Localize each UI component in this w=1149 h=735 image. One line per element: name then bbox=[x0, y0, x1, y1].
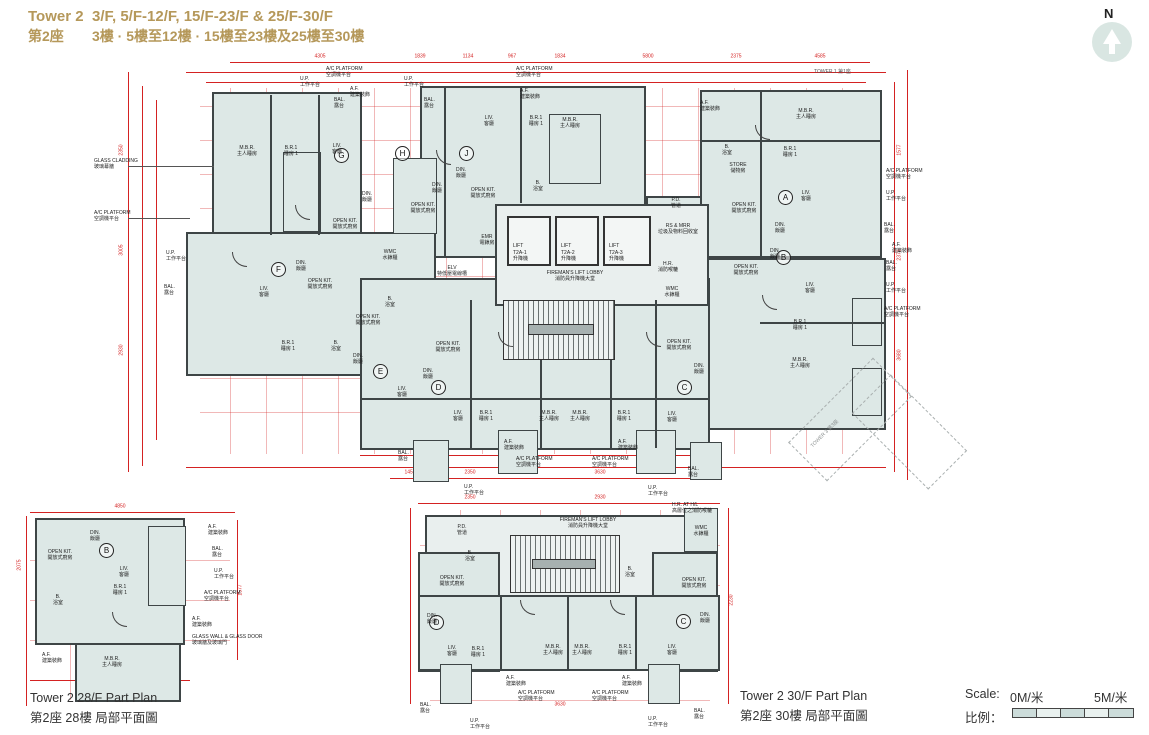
dim-value: 2350 bbox=[464, 471, 475, 476]
room-zh: 飯廳 bbox=[432, 188, 442, 194]
lift-label: 升降機 bbox=[561, 256, 597, 262]
room-zh: 客廳 bbox=[453, 416, 463, 422]
room-zh: 浴室 bbox=[625, 572, 635, 578]
room-zh: 睡房 1 bbox=[793, 325, 807, 331]
plan28-balcony-block bbox=[148, 526, 186, 606]
unit-badge-d: D bbox=[431, 380, 446, 395]
dim-value: 4305 bbox=[314, 55, 325, 60]
room-zh: 水錶櫃 bbox=[693, 531, 708, 537]
ann-zh: 建築裝飾 bbox=[208, 530, 228, 536]
dim-value: 5800 bbox=[642, 55, 653, 60]
room-zh: 開放式廚房 bbox=[47, 555, 72, 561]
partition-wall bbox=[500, 595, 502, 671]
room-label-br1: B.R.1睡房 1 bbox=[529, 115, 543, 127]
room-label-din: DIN.飯廳 bbox=[694, 363, 704, 375]
room-zh: 管道 bbox=[457, 530, 467, 536]
plan28-title-zh: 第2座 28樓 局部平面圖 bbox=[30, 707, 158, 726]
page-title-floors-en: 3/F, 5/F-12/F, 15/F-23/F & 25/F-30/F bbox=[92, 8, 333, 25]
annotation-ac-platform: A/C PLATFORM空調機平台 bbox=[884, 306, 921, 318]
room-zh: 客廳 bbox=[484, 121, 494, 127]
room-label-mbr: M.B.R.主人睡房 bbox=[543, 644, 563, 656]
room-zh: 浴室 bbox=[385, 302, 395, 308]
unit-badge-a: A bbox=[778, 190, 793, 205]
room-zh: 浴室 bbox=[465, 556, 475, 562]
room-label-hr: H.R.消防喉轆 bbox=[658, 261, 678, 273]
room-label-rsmrr: RS & MRR垃圾及物料回收室 bbox=[658, 223, 698, 235]
scale-bar-segment bbox=[1085, 709, 1109, 717]
partition-wall bbox=[444, 88, 446, 256]
room-label-bath: B.浴室 bbox=[533, 180, 543, 192]
room-zh: 主人睡房 bbox=[237, 151, 257, 157]
room-zh: 客廳 bbox=[332, 149, 342, 155]
scale-bar-segment bbox=[1013, 709, 1037, 717]
room-label-okit: OPEN KIT.開放式廚房 bbox=[731, 202, 756, 214]
partition-wall bbox=[567, 595, 569, 671]
room-label-mbr: M.B.R.主人睡房 bbox=[790, 357, 810, 369]
annotation-ac-platform: A/C PLATFORM空調機平台 bbox=[518, 690, 555, 702]
ann-zh: 露台 bbox=[886, 266, 897, 272]
room-zh: 主人睡房 bbox=[543, 650, 563, 656]
leader-line bbox=[128, 218, 190, 219]
annotation-ac-platform: A/C PLATFORM空調機平台 bbox=[516, 66, 553, 78]
room-label-din: DIN.飯廳 bbox=[427, 613, 437, 625]
ann-zh: 工作平台 bbox=[886, 196, 906, 202]
scale-label-zh: 比例： bbox=[965, 707, 1003, 726]
room-label-wmc: WMC水錶櫃 bbox=[382, 249, 397, 261]
annotation-up: U.P.工作平台 bbox=[648, 716, 668, 728]
annotation-ac-platform: A/C PLATFORM空調機平台 bbox=[204, 590, 241, 602]
page-title-tower-zh: 第2座 bbox=[28, 26, 64, 46]
annotation-up: U.P.工作平台 bbox=[648, 485, 668, 497]
room-zh: 開放式廚房 bbox=[307, 284, 332, 290]
ann-zh: 露台 bbox=[420, 708, 431, 714]
ann-zh: 空調機平台 bbox=[884, 312, 921, 318]
annotation-af: A.F.建築裝飾 bbox=[504, 439, 524, 451]
room-label-liv: LIV.客廳 bbox=[667, 644, 677, 656]
room-zh: 開放式廚房 bbox=[666, 345, 691, 351]
room-zh: 水錶櫃 bbox=[664, 292, 679, 298]
room-zh: 飯廳 bbox=[775, 228, 785, 234]
ann-zh: 工作平台 bbox=[648, 491, 668, 497]
room-label-din: DIN.飯廳 bbox=[90, 530, 100, 542]
balcony-block bbox=[283, 152, 321, 232]
dim-value: 1577 bbox=[898, 144, 903, 155]
annotation-up: U.P.工作平台 bbox=[886, 282, 906, 294]
lift-t2a-1: LIFT T2A-1 升降機 bbox=[507, 216, 551, 266]
room-zh: 客廳 bbox=[667, 650, 677, 656]
partition-wall bbox=[318, 95, 320, 235]
room-zh: 飯廳 bbox=[427, 619, 437, 625]
room-label-liv: LIV.客廳 bbox=[397, 386, 407, 398]
partition-wall bbox=[362, 398, 708, 400]
lift-label: 升降機 bbox=[609, 256, 649, 262]
annotation-af: A.F.建築裝飾 bbox=[192, 616, 212, 628]
room-label-din: DIN.飯廳 bbox=[456, 167, 466, 179]
room-label-din: DIN.飯廳 bbox=[770, 248, 780, 260]
annotation-af: A.F.建築裝飾 bbox=[892, 242, 912, 254]
lift-t2a-2: LIFT T2A-2 升降機 bbox=[555, 216, 599, 266]
scale-label-en: Scale: bbox=[965, 687, 1000, 701]
ac-platform-block bbox=[648, 664, 680, 704]
partition-wall bbox=[760, 322, 884, 324]
annotation-up: U.P.工作平台 bbox=[470, 718, 490, 730]
annotation-ac-platform: A/C PLATFORM空調機平台 bbox=[592, 690, 629, 702]
room-zh: 主人睡房 bbox=[560, 123, 580, 129]
dim-value: 3630 bbox=[594, 471, 605, 476]
partition-wall bbox=[470, 300, 472, 448]
room-label-liv: LIV.客廳 bbox=[801, 190, 811, 202]
room-label-pd: P.D.管道 bbox=[671, 197, 681, 209]
partition-wall bbox=[760, 90, 762, 258]
room-label-okit: OPEN KIT.開放式廚房 bbox=[733, 264, 758, 276]
annotation-ac-platform: A/C PLATFORM空調機平台 bbox=[886, 168, 923, 180]
room-label-mbr: M.B.R.主人睡房 bbox=[570, 410, 590, 422]
room-label-okit: OPEN KIT.開放式廚房 bbox=[439, 575, 464, 587]
room-zh: 飯廳 bbox=[770, 254, 780, 260]
room-label-elv: ELV特低壓電線槽 bbox=[437, 265, 467, 277]
room-label-mbr: M.B.R.主人睡房 bbox=[796, 108, 816, 120]
room-label-din: DIN.飯廳 bbox=[353, 353, 363, 365]
annotation-bal: BAL.露台 bbox=[688, 466, 699, 478]
room-zh: 客廳 bbox=[801, 196, 811, 202]
north-arrow-icon bbox=[1092, 22, 1132, 62]
room-label-wmc: WMC水錶櫃 bbox=[693, 525, 708, 537]
room-zh: 開放式廚房 bbox=[470, 193, 495, 199]
room-zh: 儲物房 bbox=[729, 168, 746, 174]
room-zh: 睡房 1 bbox=[281, 346, 295, 352]
annotation-up: U.P.工作平台 bbox=[886, 190, 906, 202]
room-zh: 開放式廚房 bbox=[731, 208, 756, 214]
annotation-af: A.F.建築裝飾 bbox=[700, 100, 720, 112]
annotation-up: U.P.工作平台 bbox=[214, 568, 234, 580]
north-label: N bbox=[1104, 6, 1113, 21]
room-zh: 開放式廚房 bbox=[332, 224, 357, 230]
room-label-br1: B.R.1睡房 1 bbox=[471, 646, 485, 658]
room-label-din: DIN.飯廳 bbox=[423, 368, 433, 380]
room-label-okit: OPEN KIT.開放式廚房 bbox=[410, 202, 435, 214]
ann-zh: 工作平台 bbox=[300, 82, 320, 88]
ann-zh: 空調機平台 bbox=[518, 696, 555, 702]
room-label-br1: B.R.1睡房 1 bbox=[793, 319, 807, 331]
annotation-bal: BAL.露台 bbox=[694, 708, 705, 720]
room-zh: 特低壓電線槽 bbox=[437, 271, 467, 277]
scale-bar-segment bbox=[1109, 709, 1133, 717]
room-zh: 開放式廚房 bbox=[681, 583, 706, 589]
ann-zh: 建築裝飾 bbox=[622, 681, 642, 687]
room-label-okit: OPEN KIT.開放式廚房 bbox=[307, 278, 332, 290]
room-label-liv: LIV.客廳 bbox=[447, 645, 457, 657]
ann-zh: 工作平台 bbox=[470, 724, 490, 730]
annotation-af: A.F.建築裝飾 bbox=[622, 675, 642, 687]
room-label-bath: B.浴室 bbox=[53, 594, 63, 606]
ann-zh: 露台 bbox=[694, 714, 705, 720]
room-label-okit: OPEN KIT.開放式廚房 bbox=[355, 314, 380, 326]
partition-wall bbox=[270, 95, 272, 235]
room-zh: 客廳 bbox=[259, 292, 269, 298]
room-zh: 睡房 1 bbox=[479, 416, 493, 422]
room-zh: 消防員升降機大堂 bbox=[560, 523, 616, 529]
plan28-title-en: Tower 2 28/F Part Plan bbox=[30, 691, 157, 705]
ann-zh: 空調機平台 bbox=[886, 174, 923, 180]
annotation-bal: BAL.露台 bbox=[884, 222, 895, 234]
ann-zh: 建築裝飾 bbox=[192, 622, 212, 628]
dim-value: 2350 bbox=[120, 144, 125, 155]
annotation-up: U.P.工作平台 bbox=[166, 250, 186, 262]
ann-zh: 露台 bbox=[688, 472, 699, 478]
ann-zh: 空調機平台 bbox=[204, 596, 241, 602]
annotation-bal: BAL.露台 bbox=[886, 260, 897, 272]
partition-wall bbox=[520, 88, 522, 203]
ann-zh: 建築裝飾 bbox=[42, 658, 62, 664]
unit-badge-c-30f: C bbox=[676, 614, 691, 629]
annotation-ac-platform: A/C PLATFORM空調機平台 bbox=[326, 66, 363, 78]
room-zh: 開放式廚房 bbox=[435, 347, 460, 353]
room-label-bath: B.浴室 bbox=[331, 340, 341, 352]
annotation-ac-platform: A/C PLATFORM空調機平台 bbox=[592, 456, 629, 468]
room-zh: 開放式廚房 bbox=[355, 320, 380, 326]
plan30-title-en: Tower 2 30/F Part Plan bbox=[740, 689, 867, 703]
room-zh: 飯廳 bbox=[362, 197, 372, 203]
annotation-bal: BAL.露台 bbox=[164, 284, 175, 296]
room-zh: 睡房 1 bbox=[783, 152, 797, 158]
room-zh: 飯廳 bbox=[694, 369, 704, 375]
dim-value: 3005 bbox=[120, 244, 125, 255]
ann-zh: 建築裝飾 bbox=[350, 92, 370, 98]
dim-value: 4585 bbox=[814, 55, 825, 60]
room-label-wmc: WMC水錶櫃 bbox=[664, 286, 679, 298]
dim-value: 2930 bbox=[594, 496, 605, 501]
ann-zh: 露台 bbox=[398, 456, 409, 462]
room-zh: 客廳 bbox=[447, 651, 457, 657]
annotation-up: U.P.工作平台 bbox=[404, 76, 424, 88]
dim-value: 967 bbox=[508, 55, 516, 60]
annotation-af: A.F.建築裝飾 bbox=[350, 86, 370, 98]
room-zh: 水錶櫃 bbox=[382, 255, 397, 261]
page-title-tower-en: Tower 2 bbox=[28, 8, 84, 25]
room-label-liv: LIV.客廳 bbox=[453, 410, 463, 422]
room-label-br1: B.R.1睡房 1 bbox=[618, 644, 632, 656]
unit-badge-j: J bbox=[459, 146, 474, 161]
partition-wall bbox=[635, 595, 637, 671]
room-zh: 飯廳 bbox=[90, 536, 100, 542]
dim-value: 1134 bbox=[463, 55, 474, 60]
room-label-din: DIN.飯廳 bbox=[700, 612, 710, 624]
annotation-af: A.F.建築裝飾 bbox=[506, 675, 526, 687]
room-label-liv: LIV.客廳 bbox=[332, 143, 342, 155]
room-zh: 浴室 bbox=[53, 600, 63, 606]
room-zh: 飯廳 bbox=[456, 173, 466, 179]
room-zh: 消防員升降機大堂 bbox=[547, 276, 603, 282]
ac-platform-block bbox=[440, 664, 472, 704]
room-label-firemans-lift-lobby: FIREMAN'S LIFT LOBBY消防員升降機大堂 bbox=[547, 270, 603, 282]
unit-badge-b-28f: B bbox=[99, 543, 114, 558]
dim-value: 4850 bbox=[114, 505, 125, 510]
dim-value: 3630 bbox=[554, 703, 565, 708]
annotation-bal: BAL.露台 bbox=[334, 97, 345, 109]
ann-zh: 工作平台 bbox=[404, 82, 424, 88]
scale-bar-segment bbox=[1061, 709, 1085, 717]
room-zh: 主人睡房 bbox=[570, 416, 590, 422]
room-label-bath: B.浴室 bbox=[722, 144, 732, 156]
staircase-landing bbox=[528, 324, 594, 335]
dim-value: 2375 bbox=[730, 55, 741, 60]
room-zh: 飯廳 bbox=[423, 374, 433, 380]
ann-zh: 露台 bbox=[424, 103, 435, 109]
annotation-bal: BAL.露台 bbox=[420, 702, 431, 714]
floor-plan-page: Tower 2 3/F, 5/F-12/F, 15/F-23/F & 25/F-… bbox=[0, 0, 1149, 735]
room-label-okit: OPEN KIT.開放式廚房 bbox=[332, 218, 357, 230]
dim-line bbox=[230, 62, 870, 63]
room-label-din: DIN.飯廳 bbox=[362, 191, 372, 203]
room-zh: 開放式廚房 bbox=[439, 581, 464, 587]
room-label-br1: B.R.1睡房 1 bbox=[284, 145, 298, 157]
ann-zh: 露台 bbox=[884, 228, 895, 234]
scale-bar-segment bbox=[1037, 709, 1061, 717]
room-zh: 客廳 bbox=[397, 392, 407, 398]
room-label-bath: B.浴室 bbox=[465, 550, 475, 562]
dim-line bbox=[26, 516, 27, 706]
room-label-okit: OPEN KIT.開放式廚房 bbox=[435, 341, 460, 353]
ann-zh: 建築裝飾 bbox=[506, 681, 526, 687]
tower1-outline-label: TOWER 1 第1座 bbox=[814, 68, 851, 75]
room-label-mbr: M.B.R.主人睡房 bbox=[237, 145, 257, 157]
room-label-liv: LIV.客廳 bbox=[667, 411, 677, 423]
dim-line bbox=[128, 72, 129, 472]
annotation-glass-wall-door: GLASS WALL & GLASS DOOR玻璃牆及玻璃門 bbox=[192, 634, 263, 646]
lift-label: 升降機 bbox=[513, 256, 549, 262]
balcony-block bbox=[393, 158, 437, 234]
ann-zh: 玻璃幕牆 bbox=[94, 164, 138, 170]
annotation-hr-at-hl: H.R. AT H/L高層位之消防喉轆 bbox=[672, 502, 712, 514]
dim-line bbox=[156, 100, 157, 440]
room-zh: 開放式廚房 bbox=[733, 270, 758, 276]
dim-line bbox=[142, 86, 143, 466]
room-zh: 浴室 bbox=[722, 150, 732, 156]
dim-value: 1834 bbox=[554, 55, 565, 60]
plan30-block-bottom-row bbox=[418, 595, 720, 671]
ann-zh: 工作平台 bbox=[886, 288, 906, 294]
annotation-bal: BAL.露台 bbox=[424, 97, 435, 109]
room-label-pd: P.D.管道 bbox=[457, 524, 467, 536]
page-title-floors-zh: 3樓 · 5樓至12樓 · 15樓至23樓及25樓至30樓 bbox=[92, 26, 364, 46]
ann-zh: 露台 bbox=[212, 552, 223, 558]
annotation-af: A.F.建築裝飾 bbox=[208, 524, 228, 536]
ann-zh: 建築裝飾 bbox=[520, 94, 540, 100]
room-label-store: STORE儲物房 bbox=[729, 162, 746, 174]
dim-value: 2230 bbox=[730, 594, 735, 605]
room-zh: 主人睡房 bbox=[790, 363, 810, 369]
ann-zh: 建築裝飾 bbox=[504, 445, 524, 451]
ann-zh: 建築裝飾 bbox=[700, 106, 720, 112]
room-zh: 主人睡房 bbox=[572, 650, 592, 656]
room-label-okit: OPEN KIT.開放式廚房 bbox=[470, 187, 495, 199]
ann-zh: 空調機平台 bbox=[516, 72, 553, 78]
unit-badge-e: E bbox=[373, 364, 388, 379]
staircase-landing-30f bbox=[532, 559, 596, 569]
annotation-bal: BAL.露台 bbox=[398, 450, 409, 462]
room-zh: 飯廳 bbox=[296, 266, 306, 272]
room-zh: 主人睡房 bbox=[796, 114, 816, 120]
room-label-bath: B.浴室 bbox=[625, 566, 635, 578]
room-zh: 飯廳 bbox=[353, 359, 363, 365]
room-label-din: DIN.飯廳 bbox=[775, 222, 785, 234]
room-zh: 電錶房 bbox=[479, 240, 494, 246]
room-label-okit: OPEN KIT.開放式廚房 bbox=[666, 339, 691, 351]
room-label-okit: OPEN KIT.開放式廚房 bbox=[681, 577, 706, 589]
unit-badge-c: C bbox=[677, 380, 692, 395]
room-zh: 飯廳 bbox=[700, 618, 710, 624]
ann-zh: 工作平台 bbox=[166, 256, 186, 262]
room-label-liv: LIV.客廳 bbox=[119, 566, 129, 578]
ann-zh: 建築裝飾 bbox=[618, 445, 638, 451]
room-zh: 客廳 bbox=[119, 572, 129, 578]
annotation-bal: BAL.露台 bbox=[212, 546, 223, 558]
room-zh: 主人睡房 bbox=[102, 662, 122, 668]
scale-end-label: 5M/米 bbox=[1094, 687, 1127, 706]
ann-zh: 玻璃牆及玻璃門 bbox=[192, 640, 263, 646]
ann-zh: 空調機平台 bbox=[516, 462, 553, 468]
room-zh: 管道 bbox=[671, 203, 681, 209]
ann-zh: 高層位之消防喉轆 bbox=[672, 508, 712, 514]
room-zh: 睡房 1 bbox=[529, 121, 543, 127]
scale-start-label: 0M/米 bbox=[1010, 687, 1043, 706]
ann-zh: 工作平台 bbox=[648, 722, 668, 728]
room-label-liv: LIV.客廳 bbox=[259, 286, 269, 298]
dim-line bbox=[728, 508, 729, 704]
annotation-af: A.F.建築裝飾 bbox=[618, 439, 638, 451]
room-zh: 客廳 bbox=[805, 288, 815, 294]
room-label-mbr: M.B.R.主人睡房 bbox=[572, 644, 592, 656]
ann-zh: 露台 bbox=[334, 103, 345, 109]
annotation-glass-cladding: GLASS CLADDING玻璃幕牆 bbox=[94, 158, 138, 170]
dim-value: 2930 bbox=[120, 344, 125, 355]
room-label-din: DIN.飯廳 bbox=[432, 182, 442, 194]
plan30-title-zh: 第2座 30樓 局部平面圖 bbox=[740, 705, 868, 724]
dim-value: 2075 bbox=[18, 559, 23, 570]
room-zh: 開放式廚房 bbox=[410, 208, 435, 214]
room-zh: 垃圾及物料回收室 bbox=[658, 229, 698, 235]
plan-block-unit-a bbox=[700, 90, 882, 258]
ann-zh: 工作平台 bbox=[214, 574, 234, 580]
dim-line bbox=[30, 512, 235, 513]
room-label-liv: LIV.客廳 bbox=[805, 282, 815, 294]
room-label-br1: B.R.1睡房 1 bbox=[113, 584, 127, 596]
leader-line bbox=[128, 166, 214, 167]
room-label-firemans-lift-lobby: FIREMAN'S LIFT LOBBY消防員升降機大堂 bbox=[560, 517, 616, 529]
room-label-din: DIN.飯廳 bbox=[296, 260, 306, 272]
room-zh: 睡房 1 bbox=[617, 416, 631, 422]
ann-zh: 空調機平台 bbox=[94, 216, 131, 222]
room-zh: 睡房 1 bbox=[471, 652, 485, 658]
room-zh: 睡房 1 bbox=[618, 650, 632, 656]
room-label-br1: B.R.1睡房 1 bbox=[617, 410, 631, 422]
partition-wall bbox=[655, 300, 657, 448]
room-zh: 浴室 bbox=[533, 186, 543, 192]
annotation-af: A.F.建築裝飾 bbox=[520, 88, 540, 100]
room-label-liv: LIV.客廳 bbox=[484, 115, 494, 127]
ann-zh: 建築裝飾 bbox=[892, 248, 912, 254]
room-zh: 睡房 1 bbox=[113, 590, 127, 596]
room-zh: 睡房 1 bbox=[284, 151, 298, 157]
unit-badge-f: F bbox=[271, 262, 286, 277]
annotation-ac-platform: A/C PLATFORM空調機平台 bbox=[94, 210, 131, 222]
annotation-af: A.F.建築裝飾 bbox=[42, 652, 62, 664]
room-label-br1: B.R.1睡房 1 bbox=[479, 410, 493, 422]
room-label-okit: OPEN KIT.開放式廚房 bbox=[47, 549, 72, 561]
annotation-up: U.P.工作平台 bbox=[300, 76, 320, 88]
room-label-br1: B.R.1睡房 1 bbox=[783, 146, 797, 158]
annotation-ac-platform: A/C PLATFORM空調機平台 bbox=[516, 456, 553, 468]
